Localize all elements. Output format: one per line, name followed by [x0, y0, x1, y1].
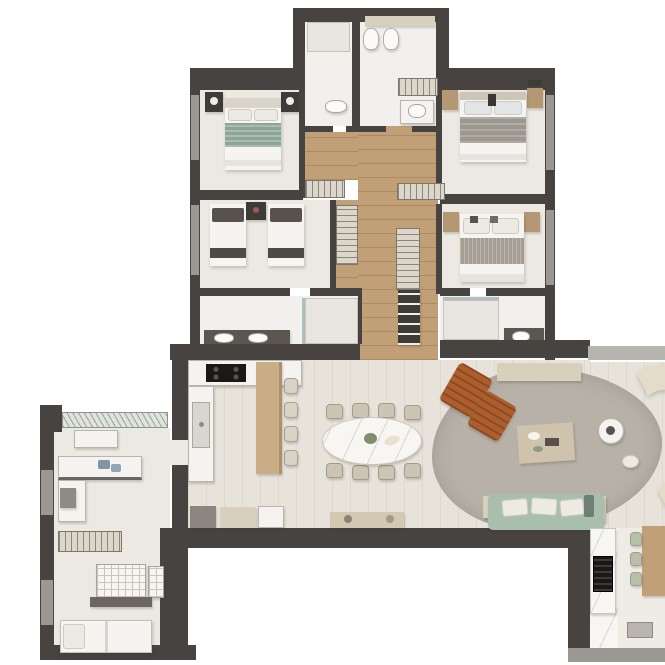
wall-living-north-west: [170, 344, 360, 360]
sideboard-gray: [190, 506, 216, 528]
cooktop: [206, 364, 246, 382]
island-stool: [284, 426, 298, 442]
service-sink-items: [111, 464, 121, 472]
shower-suite-tray: [307, 22, 350, 52]
pillow: [270, 208, 302, 222]
hallway-floor-annex: [305, 132, 358, 180]
pouf: [622, 455, 639, 468]
shower-bathL: [305, 298, 358, 344]
kitchen-island: [256, 362, 282, 474]
blanket-fold: [460, 154, 526, 160]
sofa-throw: [584, 495, 594, 517]
window-west-1: [191, 95, 199, 160]
wall-kitchen-west-b: [172, 465, 188, 528]
terrace-mat: [627, 622, 653, 638]
blanket: [460, 238, 524, 264]
wall-bathL-north-a: [200, 288, 290, 296]
wardrobe-bed4-top: [397, 183, 445, 200]
dining-chair: [326, 463, 343, 478]
dining-chair: [378, 465, 395, 480]
window-west-2: [191, 205, 199, 275]
laundry-shelf: [90, 597, 152, 607]
bed-double-2: [460, 92, 526, 162]
shower-glass: [302, 298, 305, 344]
lamp: [210, 97, 218, 105]
laundry-unit: [148, 566, 164, 598]
wall-hall-north-c: [412, 126, 438, 132]
blanket: [460, 117, 526, 143]
toilet-2: [383, 28, 399, 50]
island-stool: [284, 402, 298, 418]
wall-art: [528, 80, 542, 86]
cabinet-white: [258, 506, 284, 528]
wall-top-right: [437, 68, 555, 90]
wall-bath-suite-east: [436, 20, 442, 200]
terrace-chair: [630, 532, 642, 546]
washer-dryer: [96, 564, 146, 598]
throw: [268, 248, 304, 258]
wc-shelf: [365, 16, 435, 26]
pillow: [212, 208, 244, 222]
wall-hall-north-b: [346, 126, 386, 132]
pillow: [494, 101, 522, 115]
wall-bathR-north-a: [440, 288, 470, 296]
terrace-chair: [630, 572, 642, 586]
dining-chair: [404, 405, 421, 420]
window-east-1: [546, 95, 554, 170]
wall-hall-north-a: [303, 126, 333, 132]
coffee-table-decor: [533, 446, 543, 452]
wall-service-east-lower: [160, 528, 188, 660]
sink: [248, 333, 268, 343]
console-table: [497, 363, 581, 381]
coffee-table-book: [545, 438, 559, 446]
dining-chair: [326, 404, 343, 419]
blanket: [105, 621, 108, 652]
wall-bathL-north-b: [310, 288, 362, 296]
wall-bed3-bed4: [440, 194, 545, 204]
wall-bed4-west: [436, 204, 442, 294]
window-east-2: [546, 210, 554, 285]
toilet-1: [363, 28, 379, 50]
sideboard-beige: [220, 507, 256, 528]
wall-shower-left-divider: [358, 296, 362, 344]
wardrobe-bed2-east: [336, 205, 358, 265]
sofa-cushion: [530, 497, 557, 516]
window-service-1: [41, 470, 53, 515]
pillow: [228, 109, 252, 121]
floor-plan: [0, 0, 665, 665]
bed-double-1: [225, 98, 281, 170]
sink-wc: [408, 104, 426, 118]
island-stool: [284, 450, 298, 466]
blanket-fold: [460, 274, 524, 282]
wall-living-north-east: [440, 340, 590, 358]
terrace-table: [642, 526, 665, 596]
pillow-accent: [490, 216, 498, 223]
terrace-chair: [630, 552, 642, 566]
wall-terrace-south: [568, 648, 665, 662]
sofa-cushion: [501, 498, 528, 517]
sink: [214, 333, 234, 343]
dining-chair: [352, 403, 369, 418]
service-window: [62, 412, 168, 428]
wall-bath-suite-divider: [352, 20, 360, 126]
nightstand: [527, 88, 543, 108]
nightstand: [443, 212, 459, 232]
wardrobe-hall-top: [398, 78, 438, 96]
dining-chair: [404, 463, 421, 478]
service-door-gap: [170, 440, 188, 465]
blanket-fold: [225, 160, 281, 166]
bench-decor: [386, 515, 394, 523]
bed-double-3: [460, 214, 524, 282]
coffee-table-dish: [528, 432, 540, 440]
dining-chair: [352, 465, 369, 480]
service-wall-cabinet: [58, 531, 122, 552]
bed-single: [60, 620, 152, 653]
wall-bath-suite-west: [299, 20, 305, 198]
wall-kitchen-west-a: [172, 360, 188, 440]
bed-twin-1: [210, 204, 246, 266]
headboard: [225, 98, 281, 108]
wall-living-south: [170, 528, 590, 548]
wall-bathR-north-b: [486, 288, 545, 296]
sink-suite: [325, 100, 347, 113]
table-plant: [364, 433, 377, 444]
bed-twin-2: [268, 204, 304, 266]
shower-glass: [443, 297, 499, 300]
wardrobe-bed2-top: [305, 180, 345, 198]
glass-sliding-door: [588, 346, 665, 360]
faucet: [199, 422, 204, 427]
throw: [210, 248, 246, 258]
shower-bathR: [443, 300, 499, 340]
grill: [593, 556, 613, 592]
island-stool: [284, 378, 298, 394]
sofa-cushion: [559, 498, 585, 517]
wardrobe-hall-west: [396, 228, 420, 290]
service-appliance: [74, 430, 118, 448]
nightstand: [442, 90, 458, 110]
wall-terrace-divider: [568, 528, 590, 650]
wall-top-left: [190, 68, 303, 90]
bench-decor: [344, 515, 352, 523]
window-service-2: [41, 580, 53, 625]
pillow-accent: [470, 216, 478, 223]
wall-bed1-bed2: [200, 190, 303, 200]
wall-service-corner: [40, 405, 62, 432]
dining-chair: [378, 403, 395, 418]
lamp: [286, 97, 294, 105]
service-sink-items: [98, 460, 110, 469]
blanket: [225, 123, 281, 147]
decor: [253, 207, 259, 213]
service-small-appliance: [60, 488, 76, 508]
pendant-lamp: [488, 94, 496, 106]
pillow: [63, 624, 85, 649]
nightstand: [524, 212, 540, 232]
pillow: [254, 109, 278, 121]
hall-cabinet: [398, 290, 420, 345]
